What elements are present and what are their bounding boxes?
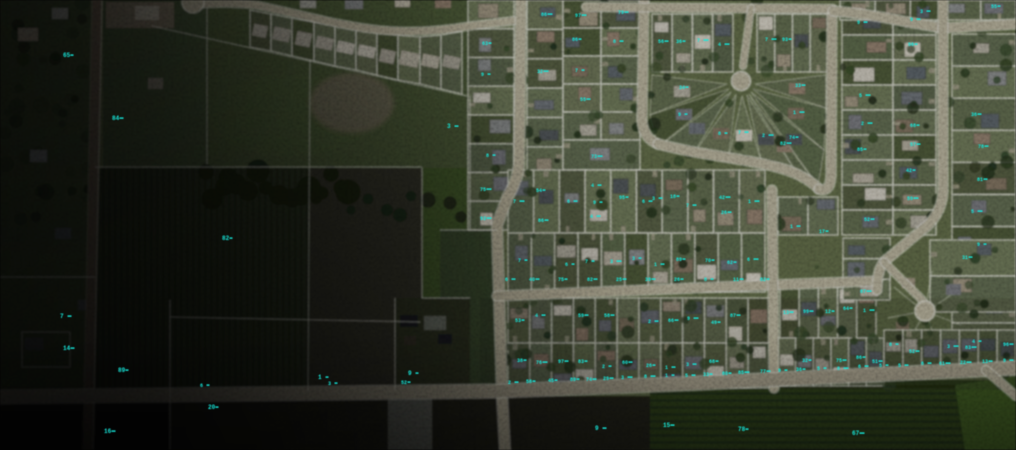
- svg-text:68: 68: [910, 123, 916, 129]
- svg-text:1: 1: [654, 262, 657, 268]
- svg-text:53: 53: [515, 318, 521, 324]
- svg-text:36: 36: [796, 367, 802, 373]
- svg-text:14: 14: [63, 345, 71, 352]
- svg-text:99: 99: [803, 309, 809, 315]
- svg-text:8: 8: [613, 39, 616, 45]
- svg-text:5: 5: [817, 366, 820, 372]
- svg-text:3: 3: [652, 196, 655, 202]
- svg-text:40: 40: [529, 277, 535, 283]
- svg-text:32: 32: [802, 358, 808, 364]
- svg-text:45: 45: [548, 378, 554, 384]
- svg-text:83: 83: [965, 345, 971, 351]
- svg-text:81: 81: [977, 177, 983, 183]
- svg-text:4: 4: [972, 339, 975, 345]
- svg-text:9: 9: [481, 72, 484, 78]
- svg-text:52: 52: [864, 217, 870, 223]
- svg-text:93: 93: [782, 37, 788, 43]
- svg-text:9: 9: [678, 112, 681, 118]
- svg-text:26: 26: [674, 277, 680, 283]
- svg-text:58: 58: [604, 313, 610, 319]
- svg-text:78: 78: [738, 426, 746, 433]
- svg-text:52: 52: [909, 349, 915, 355]
- svg-text:2: 2: [648, 319, 651, 325]
- svg-text:87: 87: [730, 313, 736, 319]
- svg-text:8: 8: [889, 342, 892, 348]
- svg-text:36: 36: [676, 39, 682, 45]
- svg-text:38: 38: [517, 358, 523, 364]
- svg-text:75: 75: [558, 277, 564, 283]
- svg-text:16: 16: [104, 428, 112, 435]
- svg-text:1: 1: [665, 373, 668, 379]
- svg-text:87: 87: [860, 289, 866, 295]
- svg-text:8: 8: [486, 153, 489, 159]
- svg-text:93: 93: [480, 216, 486, 222]
- svg-text:82: 82: [587, 277, 593, 283]
- svg-text:9: 9: [977, 242, 980, 248]
- svg-text:97: 97: [575, 13, 581, 19]
- svg-text:9: 9: [778, 368, 781, 374]
- svg-text:8: 8: [718, 131, 721, 137]
- svg-text:20: 20: [208, 404, 216, 411]
- svg-text:3: 3: [947, 344, 950, 350]
- svg-text:74: 74: [586, 377, 592, 383]
- svg-text:49: 49: [711, 320, 717, 326]
- svg-text:86: 86: [856, 355, 862, 361]
- svg-text:6: 6: [505, 277, 508, 283]
- svg-text:7: 7: [575, 68, 578, 74]
- svg-text:97: 97: [558, 359, 564, 365]
- svg-text:7: 7: [697, 38, 700, 44]
- svg-text:89: 89: [570, 377, 576, 383]
- svg-text:65: 65: [63, 52, 71, 59]
- svg-text:82: 82: [222, 235, 230, 242]
- svg-text:7: 7: [513, 199, 516, 205]
- svg-text:95: 95: [619, 195, 625, 201]
- svg-text:85: 85: [738, 370, 744, 376]
- svg-text:51: 51: [872, 359, 878, 365]
- svg-text:6: 6: [565, 262, 568, 268]
- svg-text:13: 13: [982, 359, 988, 365]
- svg-text:9: 9: [857, 20, 860, 26]
- svg-text:6: 6: [858, 364, 861, 370]
- svg-text:9: 9: [1003, 358, 1006, 364]
- svg-text:9: 9: [593, 200, 596, 206]
- svg-text:25: 25: [616, 277, 622, 283]
- svg-text:1: 1: [318, 374, 322, 381]
- svg-text:78: 78: [978, 144, 984, 150]
- svg-text:89: 89: [118, 367, 126, 374]
- svg-text:56: 56: [908, 42, 914, 48]
- svg-text:4: 4: [590, 214, 593, 220]
- svg-text:12: 12: [825, 309, 831, 315]
- svg-text:15: 15: [663, 422, 671, 429]
- svg-text:2: 2: [762, 133, 765, 139]
- svg-text:17: 17: [819, 229, 825, 235]
- svg-text:58: 58: [526, 379, 532, 385]
- svg-text:62: 62: [727, 260, 733, 266]
- svg-text:64: 64: [843, 306, 849, 312]
- svg-text:2: 2: [861, 121, 864, 127]
- svg-text:1: 1: [748, 199, 751, 205]
- svg-text:42: 42: [906, 168, 912, 174]
- svg-text:26: 26: [721, 210, 727, 216]
- svg-text:75: 75: [836, 358, 842, 364]
- svg-text:5: 5: [859, 93, 862, 99]
- svg-text:7: 7: [765, 37, 768, 43]
- svg-text:82: 82: [780, 141, 786, 147]
- svg-text:7: 7: [518, 258, 521, 264]
- svg-text:80: 80: [722, 371, 728, 377]
- svg-text:9: 9: [910, 17, 913, 23]
- svg-text:22: 22: [960, 360, 966, 366]
- svg-text:63: 63: [482, 41, 488, 47]
- svg-text:3: 3: [920, 9, 923, 15]
- svg-text:18: 18: [670, 194, 676, 200]
- svg-text:39: 39: [645, 277, 651, 283]
- svg-text:3: 3: [621, 375, 624, 381]
- svg-text:82: 82: [760, 277, 766, 283]
- svg-text:2: 2: [508, 380, 511, 386]
- svg-text:9: 9: [687, 316, 690, 322]
- svg-text:66: 66: [668, 318, 674, 324]
- svg-text:59: 59: [578, 313, 584, 319]
- svg-text:84: 84: [112, 115, 120, 122]
- svg-text:4: 4: [718, 42, 721, 48]
- svg-text:8: 8: [704, 277, 707, 283]
- svg-text:60: 60: [622, 360, 628, 366]
- svg-text:7: 7: [738, 130, 741, 136]
- svg-text:1: 1: [665, 365, 668, 371]
- svg-text:54: 54: [536, 188, 542, 194]
- svg-text:86: 86: [572, 37, 578, 43]
- svg-text:83: 83: [578, 359, 584, 365]
- svg-text:8: 8: [837, 366, 840, 372]
- svg-text:52: 52: [401, 380, 407, 386]
- svg-text:70: 70: [705, 258, 711, 264]
- svg-text:73: 73: [591, 154, 597, 160]
- svg-text:1: 1: [863, 308, 866, 314]
- svg-text:2: 2: [602, 364, 605, 370]
- svg-text:75: 75: [480, 187, 486, 193]
- svg-text:6: 6: [747, 257, 750, 263]
- svg-text:5: 5: [971, 209, 974, 215]
- svg-text:7: 7: [60, 313, 64, 320]
- svg-text:3: 3: [610, 259, 613, 265]
- svg-text:96: 96: [1003, 342, 1009, 348]
- svg-text:5: 5: [898, 363, 901, 369]
- svg-text:11: 11: [733, 277, 739, 283]
- svg-text:67: 67: [852, 430, 860, 437]
- svg-text:77: 77: [760, 369, 766, 375]
- svg-text:33: 33: [795, 83, 801, 89]
- svg-text:68: 68: [709, 359, 715, 365]
- svg-text:33: 33: [703, 372, 709, 378]
- svg-text:6: 6: [921, 361, 924, 367]
- svg-text:34: 34: [679, 85, 685, 91]
- svg-text:61: 61: [939, 361, 945, 367]
- svg-text:5: 5: [879, 363, 882, 369]
- svg-text:6: 6: [567, 199, 570, 205]
- svg-text:55: 55: [991, 4, 997, 10]
- svg-text:31: 31: [962, 255, 968, 261]
- svg-text:29: 29: [603, 376, 609, 382]
- svg-text:55: 55: [580, 97, 586, 103]
- svg-text:6: 6: [200, 383, 203, 389]
- svg-text:42: 42: [719, 195, 725, 201]
- svg-text:9: 9: [595, 425, 599, 432]
- svg-text:86: 86: [541, 12, 547, 18]
- svg-text:36: 36: [971, 112, 977, 118]
- svg-text:3: 3: [447, 123, 451, 130]
- svg-text:3: 3: [328, 381, 331, 387]
- svg-text:1: 1: [790, 224, 793, 230]
- svg-text:86: 86: [538, 218, 544, 224]
- svg-text:5: 5: [685, 373, 688, 379]
- svg-text:8: 8: [644, 374, 647, 380]
- svg-text:4: 4: [591, 183, 594, 189]
- svg-text:79: 79: [618, 10, 624, 16]
- svg-text:7: 7: [585, 259, 588, 265]
- svg-text:1: 1: [793, 110, 796, 116]
- svg-text:74: 74: [789, 135, 795, 141]
- svg-text:3: 3: [632, 256, 635, 262]
- svg-text:32: 32: [537, 69, 543, 75]
- svg-text:6: 6: [642, 199, 645, 205]
- svg-text:85: 85: [857, 147, 863, 153]
- svg-text:56: 56: [658, 39, 664, 45]
- svg-text:13: 13: [783, 310, 789, 316]
- svg-text:9: 9: [408, 370, 412, 377]
- svg-text:57: 57: [910, 142, 916, 148]
- svg-text:4: 4: [535, 313, 538, 319]
- svg-text:89: 89: [676, 257, 682, 263]
- svg-text:26: 26: [646, 363, 652, 369]
- svg-text:7: 7: [686, 203, 689, 209]
- svg-text:59: 59: [907, 196, 913, 202]
- svg-text:76: 76: [536, 360, 542, 366]
- svg-text:3: 3: [686, 362, 689, 368]
